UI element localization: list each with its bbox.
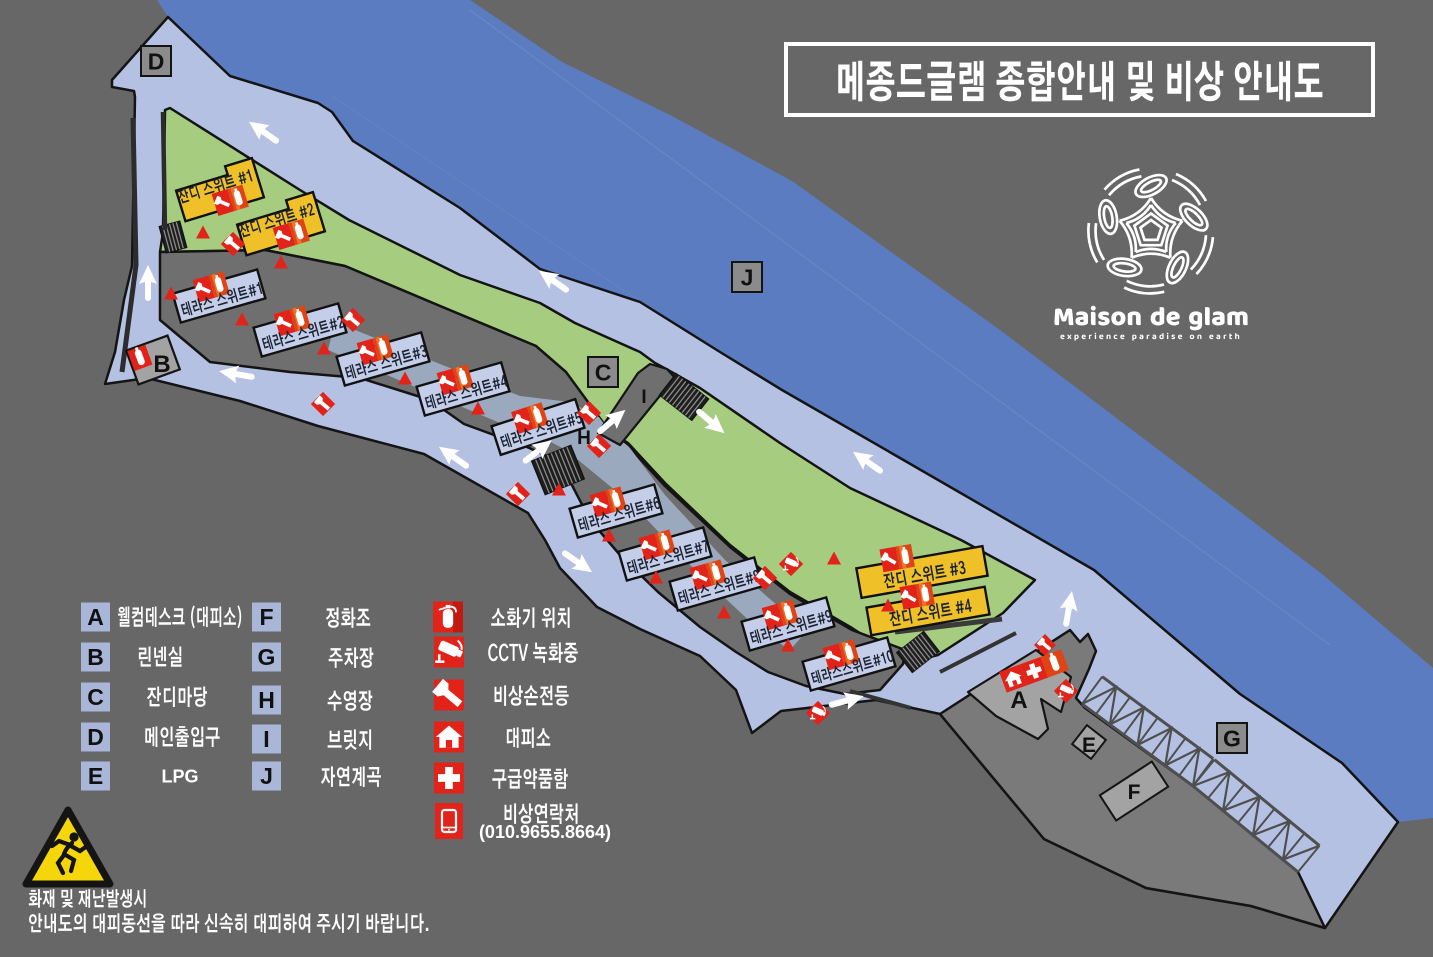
- svg-text:H: H: [577, 428, 591, 449]
- svg-text:G: G: [258, 644, 276, 670]
- svg-text:H: H: [258, 687, 275, 713]
- svg-text:E: E: [88, 763, 103, 789]
- svg-text:C: C: [595, 359, 612, 385]
- svg-text:A: A: [1010, 687, 1027, 714]
- svg-text:F: F: [259, 604, 273, 630]
- svg-text:E: E: [1082, 734, 1096, 757]
- svg-text:B: B: [87, 644, 104, 670]
- svg-text:D: D: [87, 724, 104, 750]
- svg-text:(010.9655.8664): (010.9655.8664): [479, 822, 611, 842]
- svg-text:I: I: [641, 387, 646, 408]
- svg-text:F: F: [1128, 781, 1141, 804]
- svg-text:B: B: [153, 351, 170, 378]
- svg-text:A: A: [87, 604, 104, 630]
- svg-text:J: J: [260, 763, 273, 789]
- svg-text:D: D: [148, 48, 165, 74]
- svg-text:G: G: [1223, 725, 1241, 751]
- svg-text:J: J: [741, 264, 754, 290]
- svg-text:I: I: [263, 726, 269, 752]
- svg-text:LPG: LPG: [161, 767, 198, 787]
- svg-text:C: C: [87, 684, 104, 710]
